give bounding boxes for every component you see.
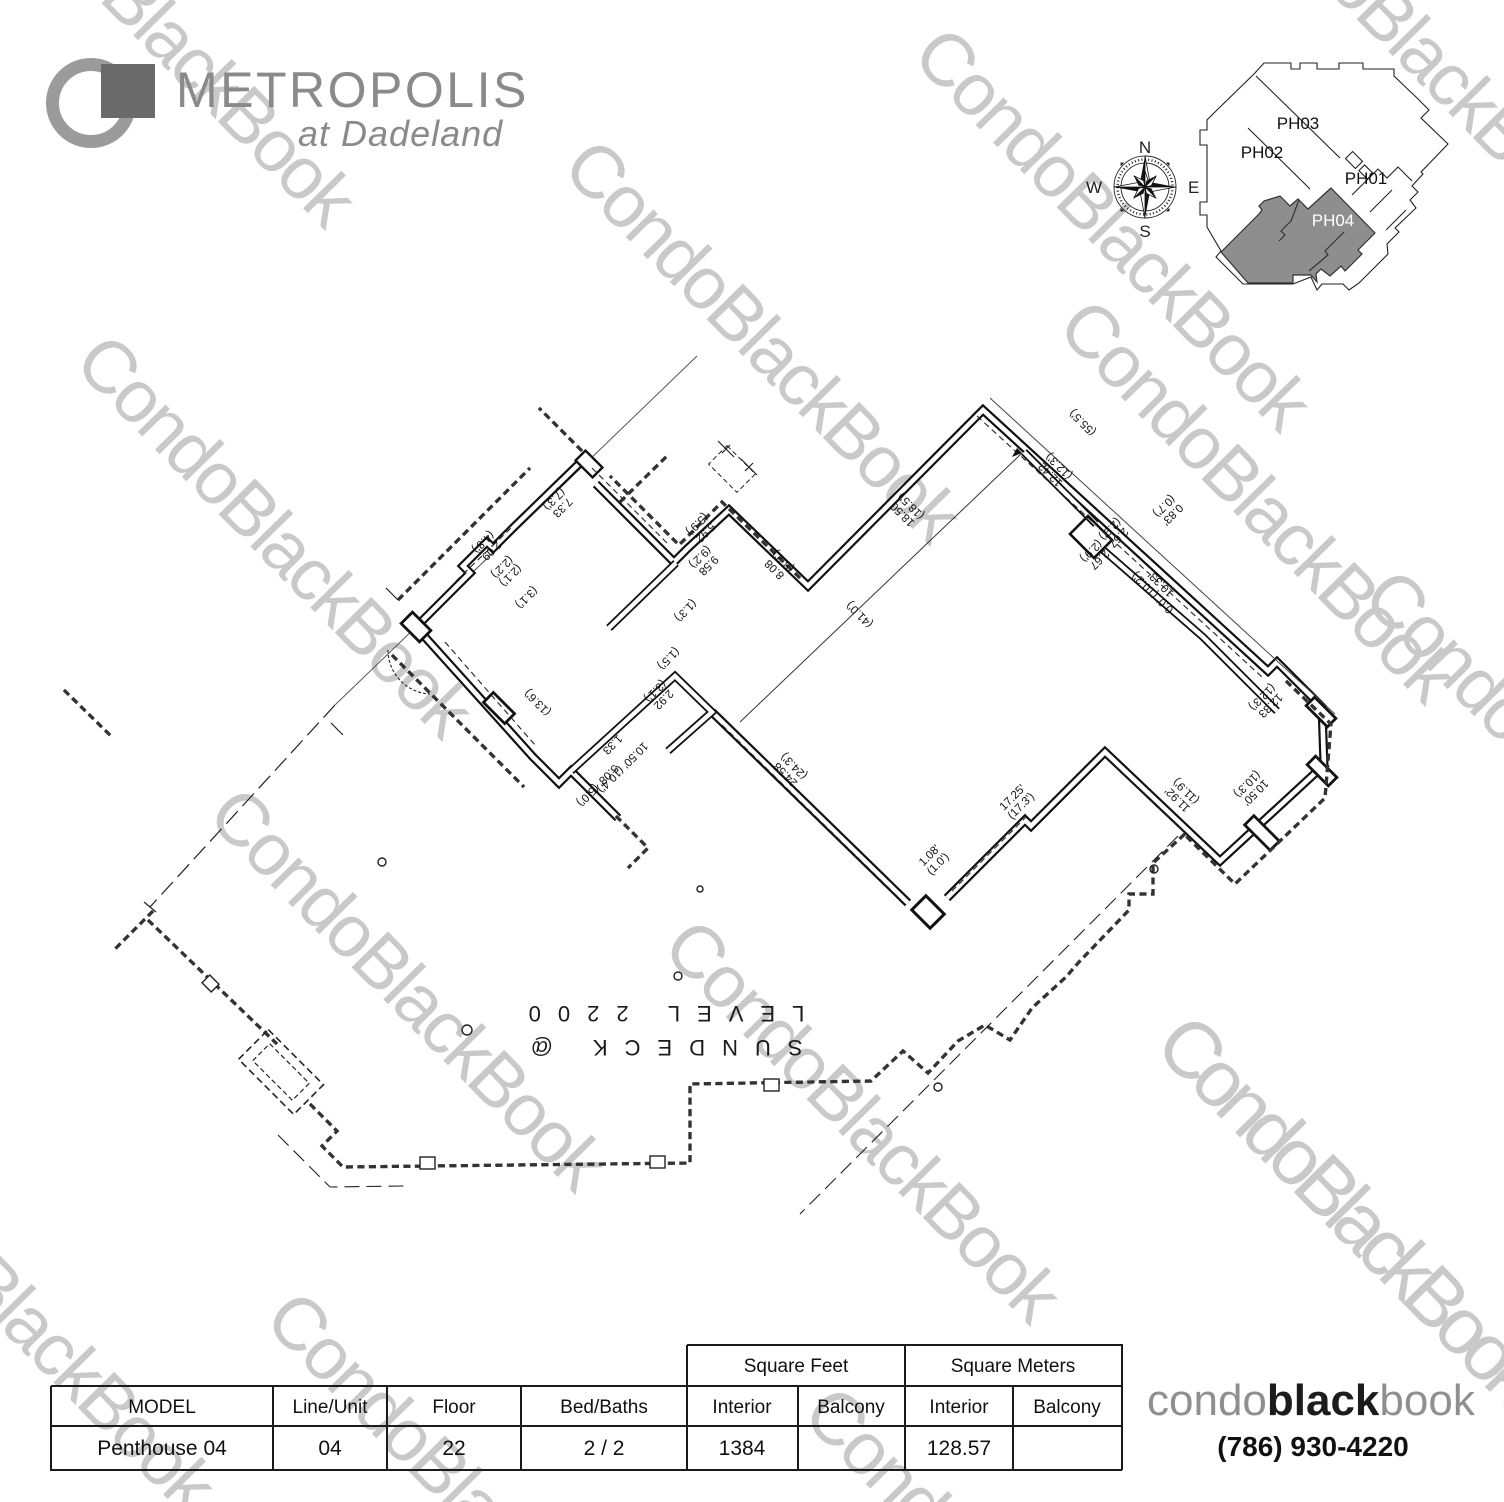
svg-text:PH04: PH04 <box>1312 211 1355 230</box>
svg-text:(13.6'): (13.6') <box>522 686 553 717</box>
svg-text:METROPOLIS: METROPOLIS <box>176 62 529 118</box>
svg-text:128.57: 128.57 <box>927 1437 991 1460</box>
svg-text:(1.3'): (1.3') <box>672 597 699 624</box>
svg-text:(786) 930-4220: (786) 930-4220 <box>1217 1431 1408 1462</box>
svg-text:Balcony: Balcony <box>817 1397 885 1418</box>
svg-text:17.25'(17.3'): 17.25'(17.3') <box>997 782 1037 822</box>
svg-text:1.08'(1.0'): 1.08'(1.0') <box>916 842 951 877</box>
svg-text:PH01: PH01 <box>1345 169 1388 188</box>
svg-text:CondoBlackBook: CondoBlackBook <box>649 903 1079 1339</box>
svg-text:5.92(5.9'): 5.92(5.9') <box>683 510 718 545</box>
svg-text:04: 04 <box>318 1437 342 1460</box>
svg-text:0.83'(0.7'): 0.83'(0.7') <box>1150 492 1185 527</box>
svg-text:Line/Unit: Line/Unit <box>293 1397 369 1418</box>
svg-text:24.58(24.3'): 24.58(24.3') <box>770 750 810 790</box>
svg-text:CondoBlackBook: CondoBlackBook <box>1140 998 1504 1425</box>
svg-text:PH03: PH03 <box>1277 114 1320 133</box>
svg-text:22: 22 <box>442 1437 465 1460</box>
svg-text:N: N <box>1139 138 1151 157</box>
svg-text:Bed/Baths: Bed/Baths <box>560 1397 648 1418</box>
svg-text:PH02: PH02 <box>1241 143 1284 162</box>
svg-text:Square Feet: Square Feet <box>744 1356 849 1377</box>
svg-text:at Dadeland: at Dadeland <box>298 113 503 154</box>
svg-text:Balcony: Balcony <box>1033 1397 1101 1418</box>
svg-text:Floor: Floor <box>432 1397 476 1418</box>
svg-text:(55.5'): (55.5') <box>1067 406 1098 437</box>
svg-text:2 / 2: 2 / 2 <box>584 1437 625 1460</box>
svg-text:(2.1')(2.2'): (2.1')(2.2') <box>488 553 523 588</box>
svg-text:10.50'(10.3'): 10.50'(10.3') <box>1231 768 1271 808</box>
svg-text:CondoBlackBook: CondoBlackBook <box>1349 553 1504 989</box>
svg-text:Interior: Interior <box>712 1397 772 1418</box>
svg-text:(3.1'): (3.1') <box>513 584 540 611</box>
svg-text:(1.5'): (1.5') <box>655 645 682 672</box>
svg-text:1384: 1384 <box>719 1437 766 1460</box>
svg-text:2.67(2.9'): 2.67(2.9') <box>1077 537 1112 572</box>
svg-text:S: S <box>1139 222 1150 241</box>
svg-text:MODEL: MODEL <box>128 1397 196 1418</box>
svg-text:condoblackbook: condoblackbook <box>1147 1376 1476 1425</box>
svg-text:(41.0'): (41.0') <box>844 598 875 629</box>
svg-text:Interior: Interior <box>929 1397 989 1418</box>
svg-text:CondoBlackBook: CondoBlackBook <box>251 1275 681 1502</box>
svg-text:W: W <box>1086 178 1102 197</box>
svg-text:CondoBlackBook: CondoBlackBook <box>194 771 624 1207</box>
svg-text:E: E <box>1188 178 1199 197</box>
svg-text:Penthouse 04: Penthouse 04 <box>97 1437 227 1460</box>
svg-text:CondoBlackBook: CondoBlackBook <box>549 123 979 559</box>
svg-text:Square Meters: Square Meters <box>951 1356 1076 1377</box>
